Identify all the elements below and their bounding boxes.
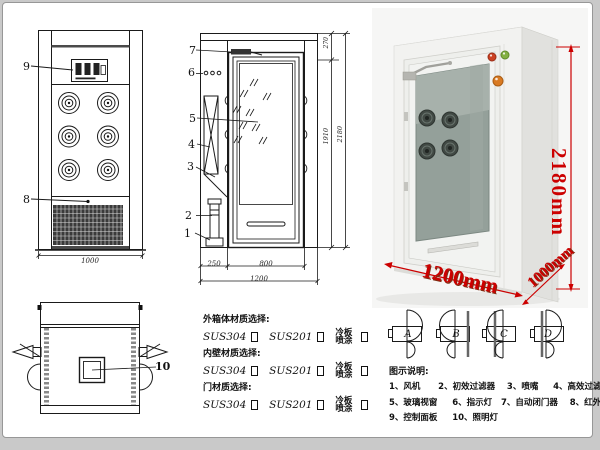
- side-view-drawing: [195, 31, 350, 285]
- part-label-4: 4: [188, 138, 195, 151]
- part-label-3: 3: [187, 160, 194, 173]
- control-panel-icon: [72, 60, 108, 82]
- door-handle-icon: [247, 222, 285, 226]
- outer-sus304-checkbox[interactable]: [251, 332, 258, 342]
- part-label-8: 8: [23, 193, 30, 206]
- dim-2180-text: 2180: [336, 126, 344, 143]
- outer-sus201-checkbox[interactable]: [317, 332, 324, 342]
- dim-250-text: 250: [203, 260, 225, 268]
- dim-1910-text: 1910: [322, 128, 330, 145]
- part-label-5: 5: [189, 112, 196, 125]
- left-bracket-icon: [13, 344, 41, 390]
- door-sus201-checkbox[interactable]: [317, 400, 324, 410]
- door-option-c-label: C: [498, 329, 510, 340]
- dim-1200-text: 1200: [245, 275, 273, 283]
- sus201-label: SUS201: [269, 365, 312, 377]
- sus304-label: SUS304: [203, 365, 246, 377]
- outer-spray-checkbox[interactable]: [361, 332, 368, 342]
- part-label-1: 1: [184, 227, 191, 240]
- outer-material-options: SUS304 SUS201 冷板喷涂: [203, 332, 368, 342]
- sus304-label: SUS304: [203, 399, 246, 411]
- outer-material-header: 外箱体材质选择:: [203, 316, 368, 325]
- legend-line-1: 1、风机 2、初效过滤器 3、喷嘴 4、高效过滤器: [389, 383, 600, 392]
- dim-270-text: 270: [323, 37, 330, 48]
- top-view-drawing: [13, 303, 167, 414]
- indicator-lights-icon: [204, 71, 221, 75]
- legend-title: 图示说明:: [389, 368, 600, 377]
- inner-material-options: SUS304 SUS201 冷板喷涂: [203, 366, 368, 376]
- fan-icon: [204, 96, 218, 174]
- door-option-b-label: B: [450, 329, 462, 340]
- spec-sheet: 9 8 1000 7 6 5 4 3 2 1 270 1910 2180 250…: [0, 0, 600, 450]
- front-width-dim-text: 1000: [75, 257, 105, 265]
- part-label-2: 2: [185, 209, 192, 222]
- part-label-10: 10: [155, 360, 170, 373]
- dim-800-text: 800: [252, 260, 280, 268]
- nozzle-icons: [59, 93, 119, 181]
- legend-line-3: 9、控制面板 10、照明灯: [389, 414, 600, 423]
- inner-material-header: 内壁材质选择:: [203, 350, 368, 359]
- door-swing-diagrams: [389, 310, 564, 358]
- spray-label: 冷板喷涂: [335, 329, 356, 346]
- spray-label: 冷板喷涂: [335, 397, 356, 414]
- front-view-drawing: [31, 31, 146, 260]
- legend: 图示说明: 1、风机 2、初效过滤器 3、喷嘴 4、高效过滤器 5、玻璃视窗 6…: [389, 368, 600, 423]
- glass-hatch-marks: [233, 79, 271, 144]
- door-spray-checkbox[interactable]: [361, 400, 368, 410]
- sus304-label: SUS304: [203, 331, 246, 343]
- door-option-a-label: A: [402, 329, 414, 340]
- spray-label: 冷板喷涂: [335, 363, 356, 380]
- door-material-options: SUS304 SUS201 冷板喷涂: [203, 400, 368, 410]
- sus201-label: SUS201: [269, 331, 312, 343]
- legend-line-2: 5、玻璃视窗 6、指示灯 7、自动闭门器 8、红外线感应器: [389, 399, 600, 408]
- part-label-7: 7: [189, 44, 196, 57]
- door-hinge-bumps: [225, 96, 307, 173]
- part-label-6: 6: [188, 66, 195, 79]
- sus201-label: SUS201: [269, 399, 312, 411]
- inner-sus201-checkbox[interactable]: [317, 366, 324, 376]
- inner-spray-checkbox[interactable]: [361, 366, 368, 376]
- part-label-9: 9: [23, 60, 30, 73]
- door-option-d-label: D: [542, 329, 554, 340]
- inner-sus304-checkbox[interactable]: [251, 366, 258, 376]
- door-material-header: 门材质选择:: [203, 384, 368, 393]
- grille-icon: [53, 205, 123, 245]
- material-form: 外箱体材质选择: SUS304 SUS201 冷板喷涂 内壁材质选择: SUS3…: [203, 316, 368, 410]
- door-sus304-checkbox[interactable]: [251, 400, 258, 410]
